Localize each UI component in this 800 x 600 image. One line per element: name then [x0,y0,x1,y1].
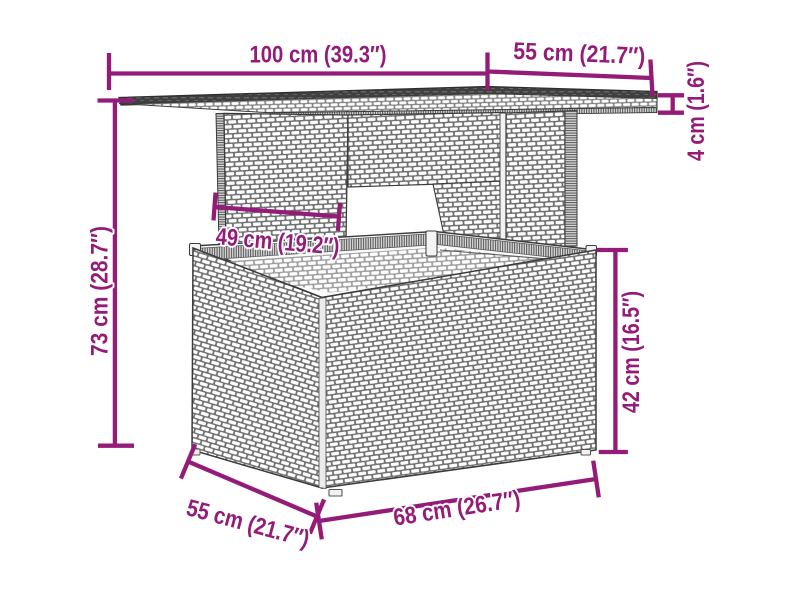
svg-text:55 cm (21.7″): 55 cm (21.7″) [513,38,646,71]
svg-text:73 cm (28.7″): 73 cm (28.7″) [87,226,114,356]
svg-text:4 cm (1.6″): 4 cm (1.6″) [683,61,710,161]
svg-text:42 cm (16.5″): 42 cm (16.5″) [618,291,645,413]
svg-text:100 cm (39.3″): 100 cm (39.3″) [250,42,387,69]
